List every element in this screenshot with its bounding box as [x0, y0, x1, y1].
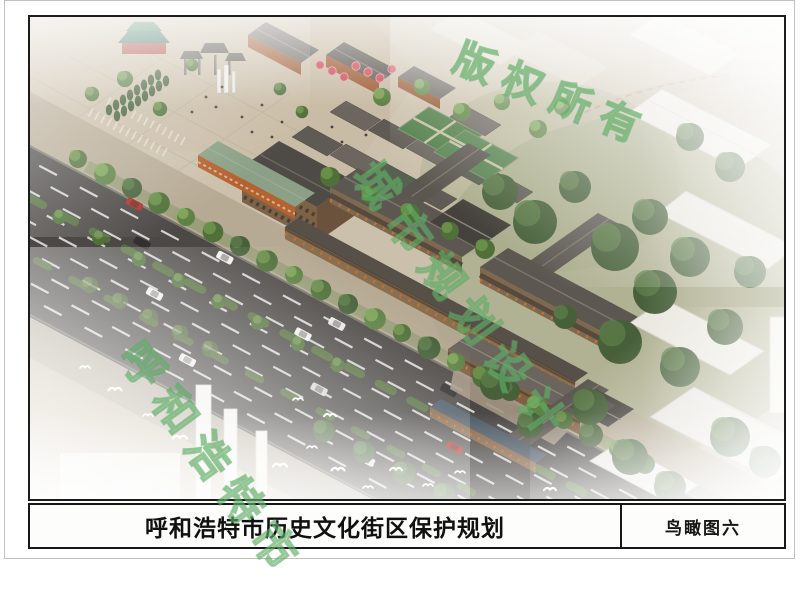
- caption-label-box: 鸟瞰图六: [620, 503, 786, 549]
- drawing-sheet: 呼和浩特市历史文化街区保护规划 鸟瞰图六 呼和浩特市 城市规划设计 版权所有: [0, 0, 800, 566]
- figure-label: 鸟瞰图六: [665, 514, 741, 539]
- aerial-scene: [30, 17, 784, 499]
- aerial-rendering-frame: [28, 15, 786, 501]
- page-title: 呼和浩特市历史文化街区保护规划: [145, 509, 505, 543]
- vignette-fades: [30, 17, 784, 499]
- caption-title-box: 呼和浩特市历史文化街区保护规划: [28, 503, 622, 549]
